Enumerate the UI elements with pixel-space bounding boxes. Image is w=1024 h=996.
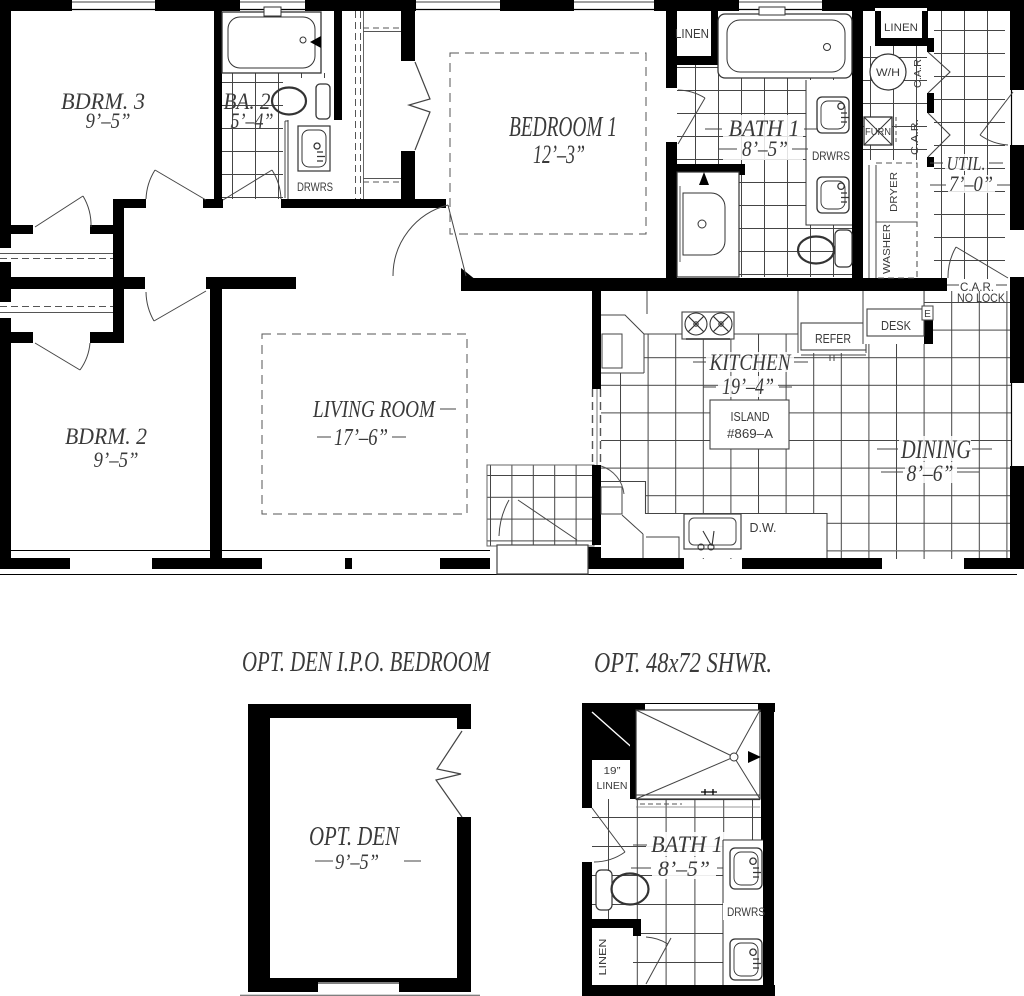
svg-text:LINEN: LINEN [884, 22, 918, 34]
svg-text:C.A.R.: C.A.R. [910, 119, 921, 155]
svg-text:17’–6”: 17’–6” [334, 425, 388, 451]
svg-text:NO LOCK: NO LOCK [957, 291, 1005, 305]
svg-text:#869–A: #869–A [727, 426, 773, 441]
svg-text:9’–5”: 9’–5” [94, 447, 139, 472]
svg-text:BEDROOM 1: BEDROOM 1 [509, 111, 617, 143]
svg-text:BDRM. 2: BDRM. 2 [65, 424, 147, 449]
svg-text:DRYER: DRYER [888, 172, 900, 212]
svg-text:DRWRS: DRWRS [812, 149, 850, 163]
svg-text:8’–5”: 8’–5” [742, 136, 788, 161]
svg-text:DESK: DESK [881, 318, 911, 333]
svg-text:19”: 19” [604, 765, 622, 777]
svg-text:D.W.: D.W. [750, 521, 777, 535]
svg-text:KITCHEN: KITCHEN [709, 350, 792, 375]
svg-text:OPT. DEN I.P.O. BEDROOM: OPT. DEN I.P.O. BEDROOM [242, 646, 491, 678]
svg-text:8’–5”: 8’–5” [658, 856, 710, 881]
svg-text:LINEN: LINEN [675, 26, 709, 41]
svg-text:FURN: FURN [865, 127, 891, 138]
svg-text:LIVING ROOM: LIVING ROOM [312, 397, 436, 423]
svg-text:DINING: DINING [900, 435, 971, 464]
svg-text:W/H: W/H [876, 67, 900, 79]
svg-text:DRWRS: DRWRS [727, 905, 765, 919]
svg-text:DRWRS: DRWRS [297, 180, 333, 194]
svg-text:C.A.R.: C.A.R. [913, 56, 924, 88]
svg-text:WASHER: WASHER [881, 224, 893, 274]
svg-text:19’–4”: 19’–4” [722, 374, 774, 399]
svg-text:5’–4”: 5’–4” [231, 108, 274, 133]
svg-text:ISLAND: ISLAND [731, 409, 770, 424]
svg-text:BATH 1: BATH 1 [651, 832, 723, 857]
svg-text:8’–6”: 8’–6” [907, 461, 954, 486]
svg-text:7’–0”: 7’–0” [949, 171, 993, 196]
svg-text:12’–3”: 12’–3” [533, 140, 585, 169]
svg-text:OPT. 48x72 SHWR.: OPT. 48x72 SHWR. [594, 647, 772, 679]
svg-text:REFER: REFER [815, 331, 851, 346]
svg-text:LINEN: LINEN [597, 780, 628, 792]
svg-text:9’–5”: 9’–5” [86, 108, 131, 133]
svg-text:9’–5”: 9’–5” [335, 849, 379, 874]
svg-text:LINEN: LINEN [597, 939, 609, 976]
svg-text:E: E [924, 309, 931, 320]
svg-text:OPT. DEN: OPT. DEN [309, 821, 401, 851]
